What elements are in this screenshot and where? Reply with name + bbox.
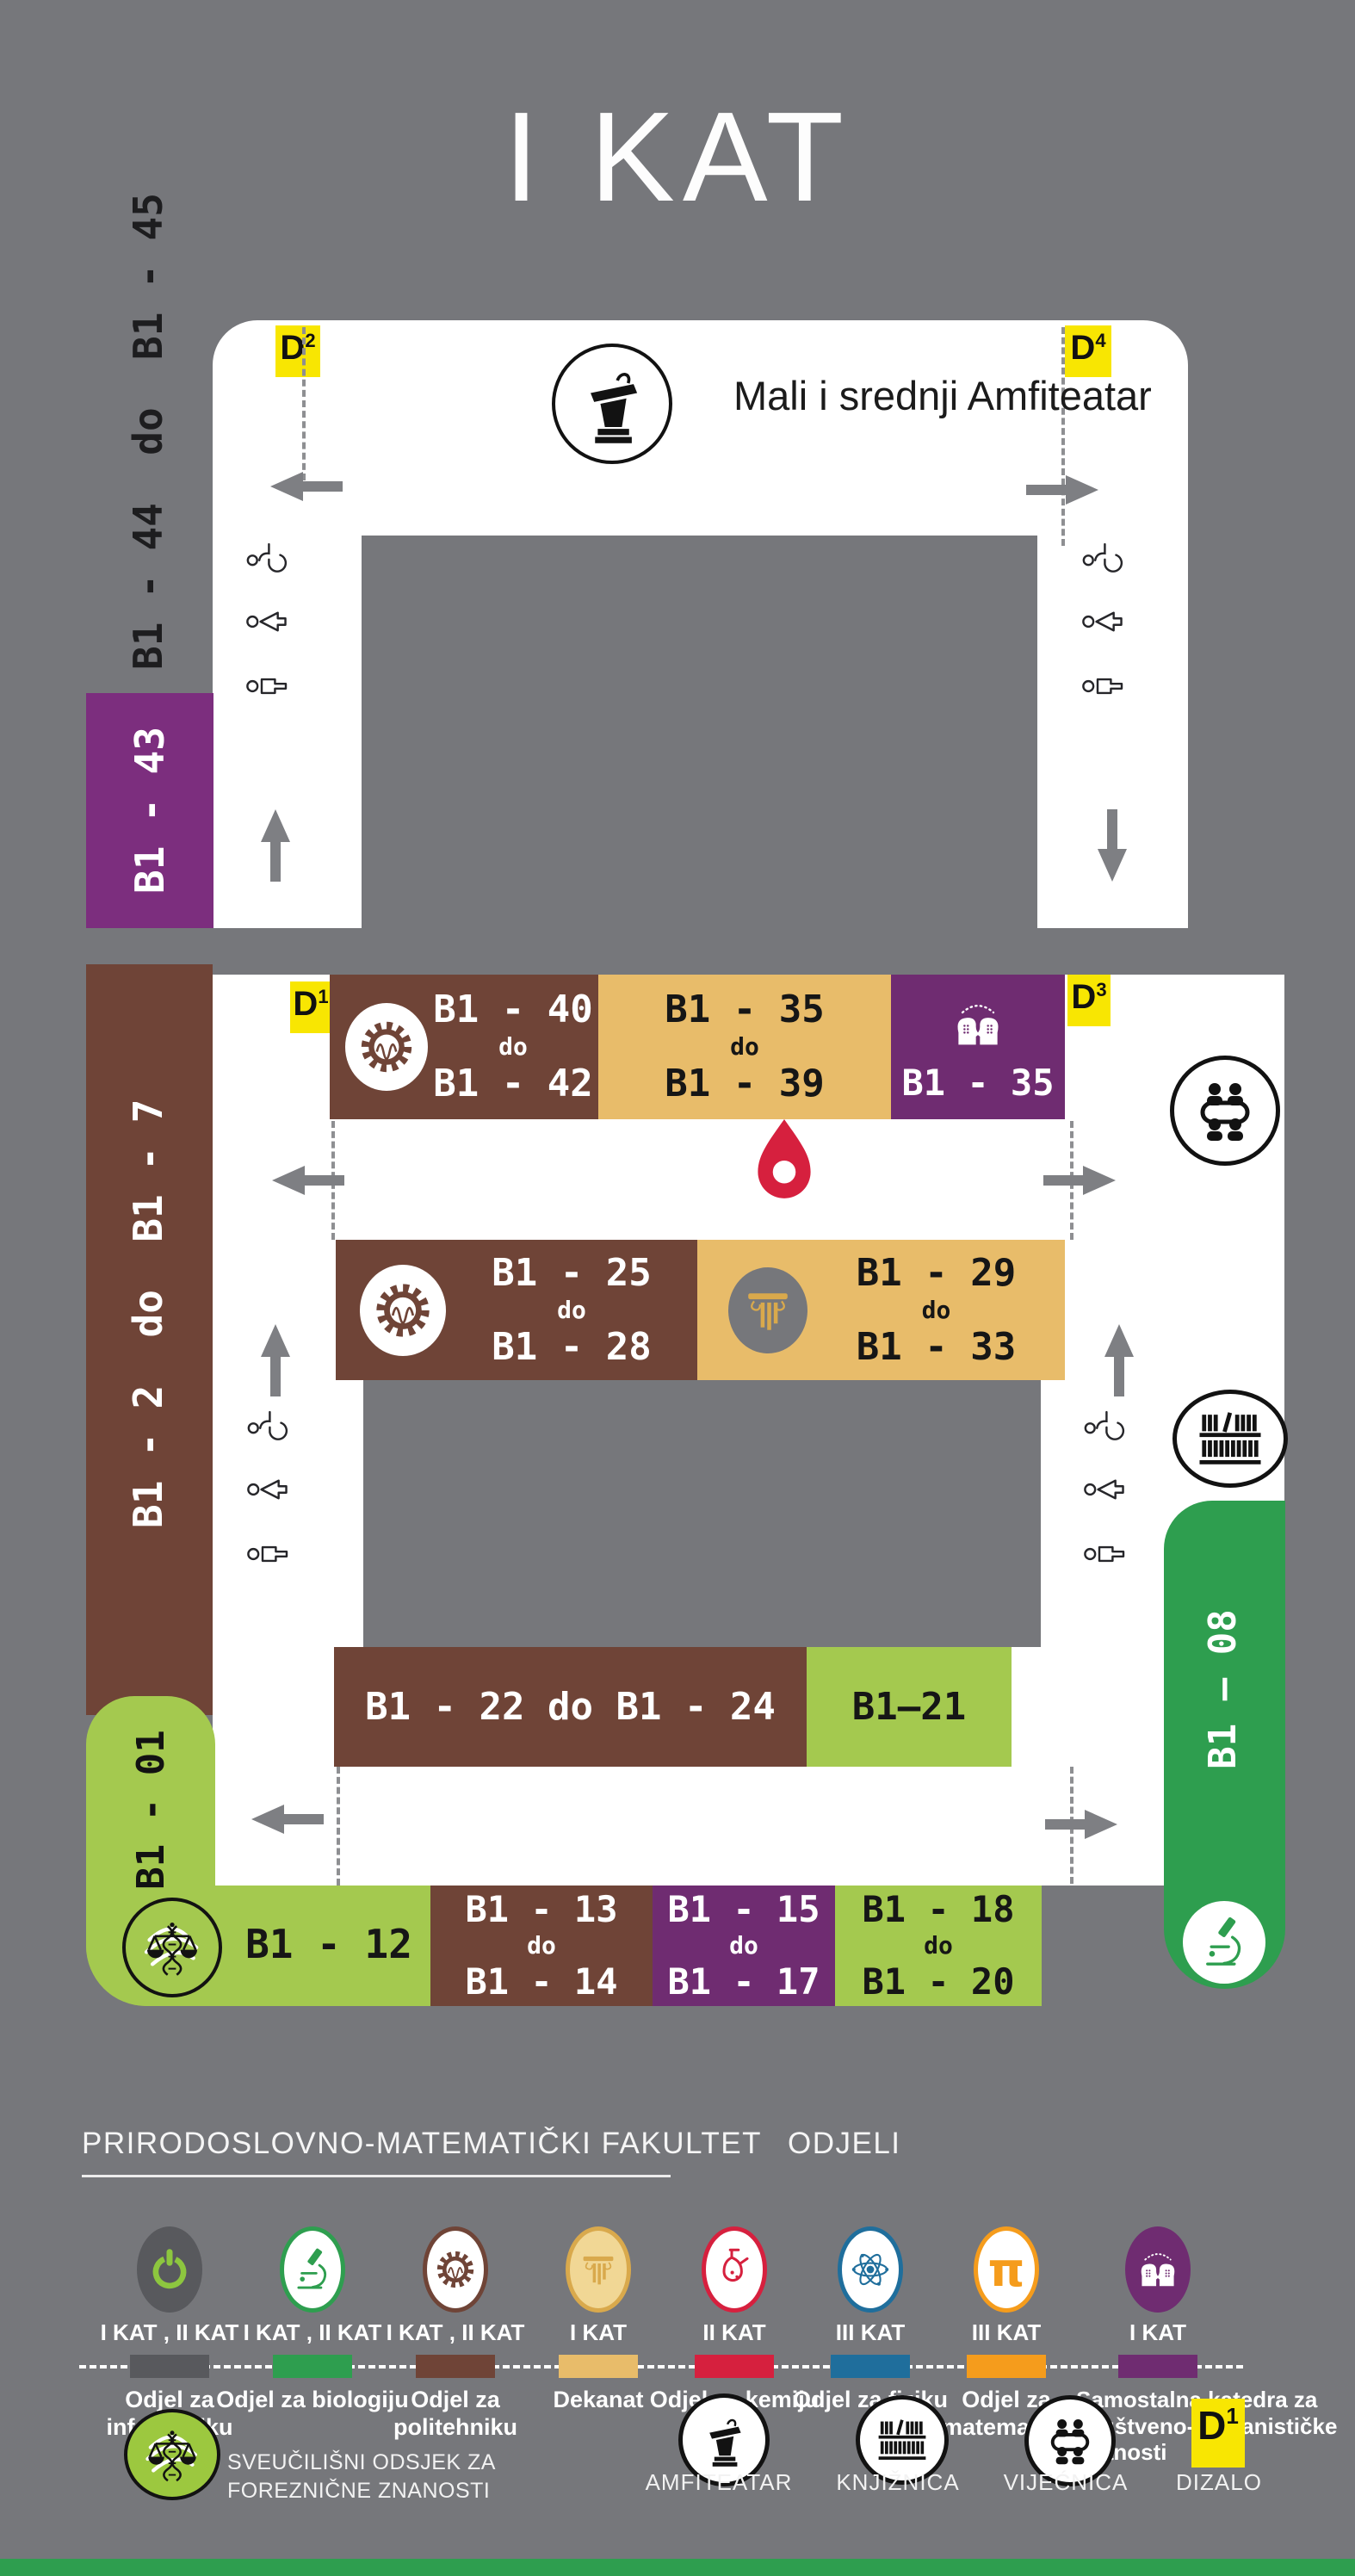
toilet-accessible-icon	[1080, 533, 1128, 581]
library-icon	[1172, 1390, 1288, 1488]
toilet-accessible-icon	[1081, 1401, 1129, 1449]
dept-floors: I KAT	[1059, 2319, 1257, 2346]
top-wing-core	[362, 536, 1037, 928]
toilet-women-icon	[1080, 598, 1128, 646]
toilet-women-icon	[244, 1465, 293, 1514]
color-chip-informatika	[130, 2355, 209, 2378]
color-chip-matematika	[967, 2355, 1046, 2378]
footer-bar	[0, 2559, 1355, 2576]
facility-label-dizalo: DIZALO	[1124, 2469, 1314, 2496]
room-b1-40-42: B1 - 40 do B1 - 42	[330, 975, 598, 1119]
color-chip-kemija	[695, 2355, 774, 2378]
elevator-badge-d3: D3	[1067, 975, 1111, 1026]
fizika-atom-icon	[838, 2226, 903, 2313]
facility-label-knjiznica: KNJIŽNICA	[803, 2469, 993, 2496]
location-pin-icon	[751, 1118, 818, 1205]
politehnika-gear-icon	[360, 1265, 446, 1356]
main-wing-core	[363, 1380, 1041, 1647]
toilet-men-icon	[1080, 662, 1128, 710]
elevator-legend-badge: D1	[1191, 2399, 1245, 2468]
toilet-women-icon	[1081, 1465, 1129, 1514]
politehnika-gear-icon	[423, 2226, 488, 2313]
arrow-down-icon	[1076, 809, 1148, 882]
toilet-accessible-icon	[244, 1401, 293, 1449]
facility-label-amfiteatar: AMFITEATAR	[624, 2469, 814, 2496]
matematika-pi-icon: π	[974, 2226, 1039, 2313]
color-chip-dekanat	[559, 2355, 638, 2378]
room-b1-35: B1 - 35	[891, 975, 1065, 1119]
toilet-men-icon	[1081, 1530, 1129, 1578]
amphitheater-icon	[552, 344, 672, 464]
elevator-badge-d2: D2	[275, 325, 320, 377]
dekanat-column-icon	[566, 2226, 631, 2313]
arrow-right-icon	[1045, 1808, 1117, 1841]
amphitheater-label: Mali i srednji Amfiteatar	[733, 370, 1152, 422]
room-b1-25-28: B1 - 25 do B1 - 28	[336, 1240, 697, 1380]
council-room-icon	[1170, 1056, 1280, 1166]
toilet-men-icon	[244, 662, 292, 710]
dekanat-column-icon	[728, 1267, 807, 1353]
legend-heading: PRIRODOSLOVNO-MATEMATIČKI FAKULTETODJELI	[82, 2127, 671, 2177]
arrow-left-icon	[272, 1164, 344, 1197]
room-b1-35-39: B1 - 35 do B1 - 39	[598, 975, 891, 1119]
toilet-women-icon	[244, 598, 292, 646]
room-b1-21: B1—21	[807, 1647, 1012, 1767]
wing-label-b1-01: B1 - 01	[124, 1706, 179, 1913]
arrow-left-icon	[251, 1803, 324, 1836]
kemija-flask-icon	[702, 2226, 767, 2313]
politehnika-gear-icon	[345, 1003, 428, 1091]
wing-label-b1-43: B1 - 43	[122, 692, 177, 928]
room-b1-29-33: B1 - 29 do B1 - 33	[697, 1240, 1065, 1380]
katedra-heads-icon	[944, 991, 1012, 1058]
arrow-up-icon	[239, 1324, 312, 1396]
wing-label-b1-2-7: B1 - 2 do B1 - 7	[121, 1158, 176, 1528]
fire-door-line	[337, 1767, 340, 1886]
wing-label-b1-44-45: B1 - 44 do B1 - 45	[121, 265, 176, 670]
color-chip-katedra	[1118, 2355, 1197, 2378]
page-title: I KAT	[0, 84, 1355, 231]
forensics-legend-icon	[124, 2409, 220, 2500]
floor-plan-poster: I KAT B1 - 44 do B1 - 45 B1 - 43 B1 - 2 …	[0, 0, 1355, 2576]
arrow-up-icon	[239, 809, 312, 882]
color-chip-biologija	[273, 2355, 352, 2378]
microscope-icon	[1183, 1901, 1265, 1984]
room-b1-13-14: B1 - 13 do B1 - 14	[430, 1886, 653, 2006]
room-b1-22-24: B1 - 22 do B1 - 24	[334, 1647, 807, 1767]
color-chip-politehnika	[416, 2355, 495, 2378]
room-b1-18-20: B1 - 18 do B1 - 20	[835, 1886, 1042, 2006]
katedra-heads-icon	[1125, 2226, 1191, 2313]
wing-label-b1-08: B1 — 08	[1196, 1543, 1251, 1836]
toilet-accessible-icon	[244, 533, 292, 581]
room-b1-15-17: B1 - 15 do B1 - 17	[653, 1886, 835, 2006]
fire-door-line	[302, 327, 306, 480]
toilet-men-icon	[244, 1530, 293, 1578]
arrow-right-icon	[1043, 1164, 1116, 1197]
biologija-microscope-icon	[280, 2226, 345, 2313]
elevator-badge-d1: D1	[290, 981, 331, 1033]
legend-dashed-line	[79, 2365, 1243, 2369]
arrow-up-icon	[1083, 1324, 1155, 1396]
elevator-badge-d4: D4	[1065, 325, 1111, 377]
informatika-power-icon	[137, 2226, 202, 2313]
arrow-left-icon	[270, 470, 343, 503]
forensics-icon	[122, 1898, 222, 1997]
color-chip-fizika	[831, 2355, 910, 2378]
forensics-legend-label: SVEUČILIŠNI ODSJEK ZA FOREZNIČNE ZNANOST…	[227, 2449, 496, 2505]
fire-door-line	[1061, 327, 1065, 546]
arrow-right-icon	[1026, 474, 1098, 506]
room-b1-12-label: B1 - 12	[226, 1920, 432, 1968]
